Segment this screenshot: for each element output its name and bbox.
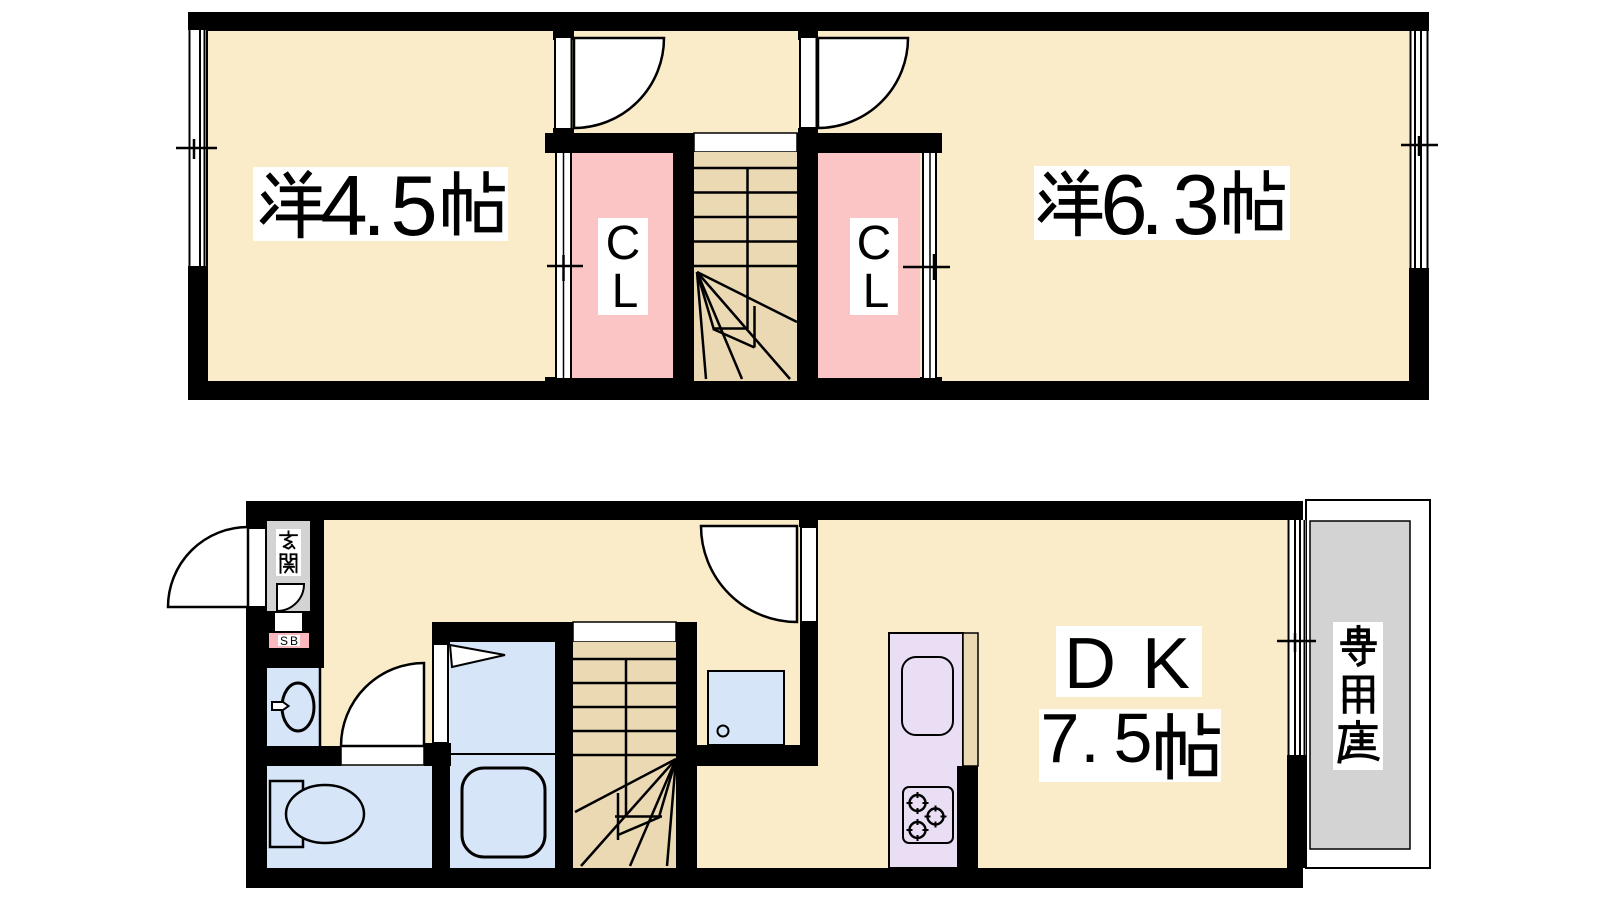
svg-text:D: D xyxy=(1064,624,1116,704)
svg-text:L: L xyxy=(863,265,890,318)
svg-text:5: 5 xyxy=(1114,699,1153,777)
svg-text:4: 4 xyxy=(320,159,367,254)
svg-text:C: C xyxy=(606,217,641,270)
svg-text:.: . xyxy=(362,159,386,254)
svg-text:5: 5 xyxy=(390,159,437,254)
svg-text:K: K xyxy=(1142,624,1190,704)
svg-text:L: L xyxy=(612,265,639,318)
svg-text:7: 7 xyxy=(1041,699,1080,777)
svg-text:B: B xyxy=(290,634,298,648)
svg-text:C: C xyxy=(857,217,892,270)
svg-text:.: . xyxy=(1080,699,1099,777)
svg-text:S: S xyxy=(280,634,288,648)
svg-text:3: 3 xyxy=(1172,158,1219,253)
svg-text:.: . xyxy=(1140,158,1164,253)
